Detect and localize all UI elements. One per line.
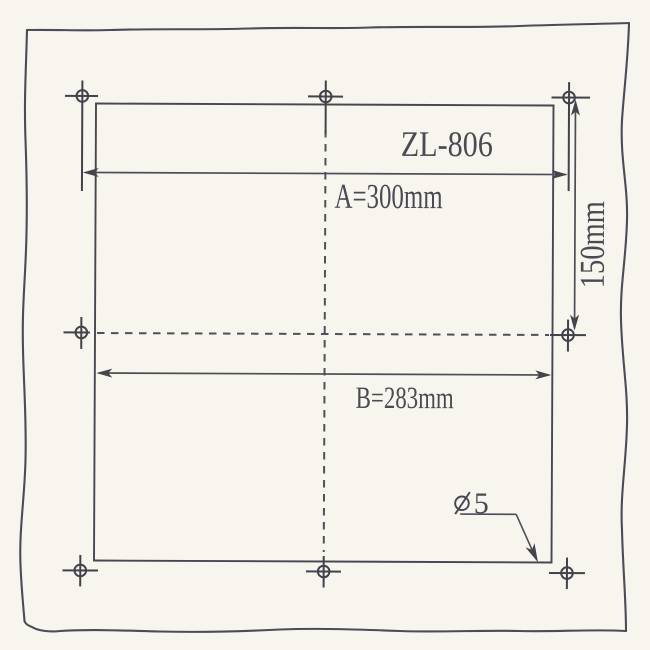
svg-text:ZL-806: ZL-806 <box>401 124 493 164</box>
svg-text:A=300mm: A=300mm <box>335 177 443 216</box>
svg-text:5: 5 <box>474 487 489 520</box>
svg-text:B=283mm: B=283mm <box>356 380 454 415</box>
svg-text:150mm: 150mm <box>573 201 612 288</box>
